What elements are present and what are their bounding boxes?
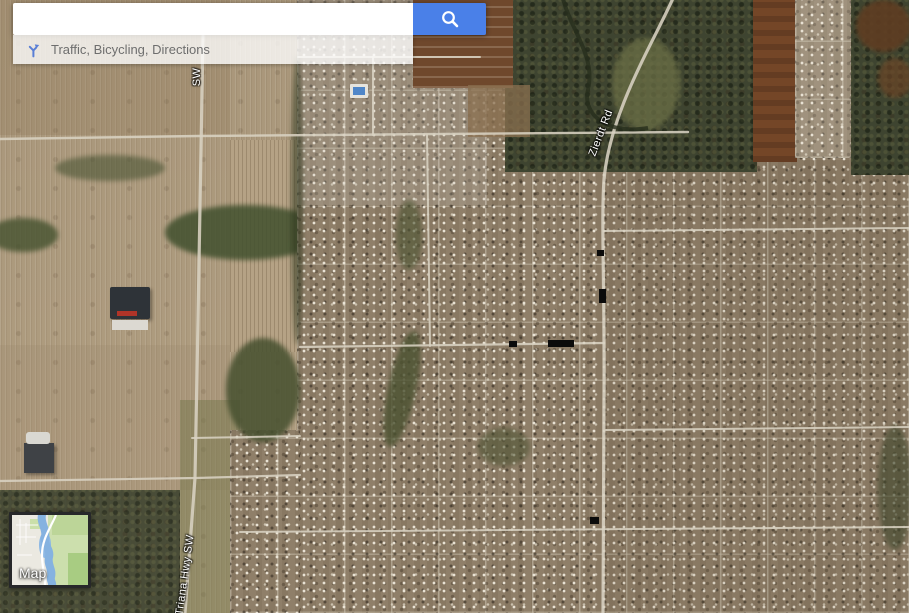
building-industrial [24,443,54,473]
building-dark-roof [110,287,150,319]
tree-cluster [165,205,325,260]
search-input[interactable] [13,3,413,35]
search-bar [13,3,486,35]
map-viewport[interactable]: Zierdt Rd SW Triana Hwy SW [0,0,909,613]
region-red-dirt-construction [753,0,797,162]
quick-links-text: Traffic, Bicycling, Directions [51,42,210,57]
imagery-artifact [509,341,517,347]
quick-links-bar[interactable]: Traffic, Bicycling, Directions [13,35,413,64]
region-woods-top [505,0,757,172]
imagery-artifact [548,340,574,347]
map-mode-toggle[interactable]: Map [9,512,91,588]
cleared-brown-patch [878,58,909,98]
tree-patch [396,200,422,270]
map-toggle-label: Map [19,565,46,581]
search-card: Traffic, Bicycling, Directions [13,3,486,64]
tree-line-farm-boundary [291,55,303,345]
community-pool [353,87,365,95]
region-housing-main [297,0,909,613]
road-label-zierdt-rd: Zierdt Rd [587,108,616,158]
tree-patch [878,425,909,550]
tree-cluster [0,218,58,252]
region-farm-field-bottom [0,345,230,490]
cleared-brown-patch [856,0,909,52]
building-red-detail [117,311,137,316]
building-silos [26,432,50,444]
region-woods-top-right [851,0,909,175]
imagery-artifact [599,289,606,303]
roads-overlay [0,0,909,613]
region-dirt-lots [468,85,530,137]
building-white-lot [112,320,148,330]
creek-trees [376,328,428,449]
imagery-artifact [597,250,604,256]
meadow-patch [612,38,680,130]
tree-line-mid [226,338,300,442]
region-housing-lower-left [230,430,300,613]
search-button[interactable] [413,3,486,35]
search-icon [440,9,460,29]
tree-cluster [55,155,165,181]
directions-icon [26,42,42,58]
road-label-hwy-sw-partial: SW [191,68,203,87]
region-housing-east-tint [604,160,909,613]
region-new-subdivision [795,0,853,158]
community-pool-deck [350,84,368,98]
region-plowed-field [230,140,297,352]
road-label-triana-hwy-sw: Triana Hwy SW [173,534,196,613]
imagery-artifact [590,517,599,524]
region-new-subdivision-tint [795,0,853,158]
tree-patch [478,428,530,466]
